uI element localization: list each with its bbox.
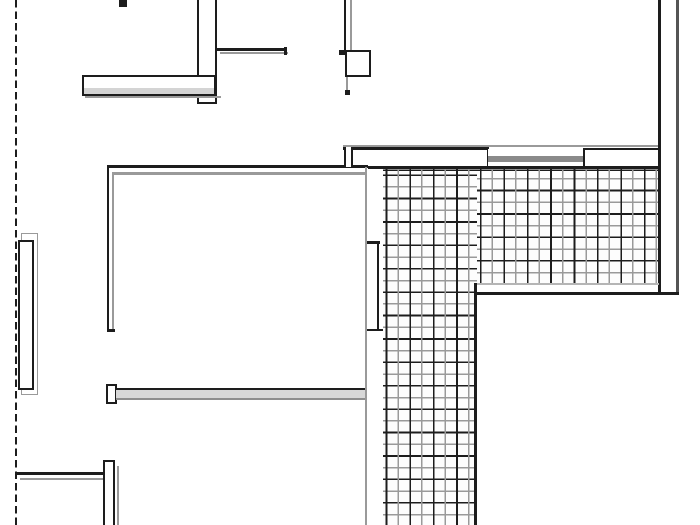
terrace-hatch-top-arm <box>477 169 658 283</box>
wall-topleft-bar-shadow <box>85 96 221 99</box>
corridor-wall-v <box>103 460 115 525</box>
terrace-hatch-vertical-arm <box>383 169 477 525</box>
east-wall-door-line <box>377 241 380 331</box>
floor-plan-canvas <box>0 0 700 525</box>
wall-topmid-gray <box>350 0 352 51</box>
terrace-inner-edge-vertical <box>474 283 477 525</box>
column-square <box>345 50 371 77</box>
room-wall-bottom-cap <box>106 384 117 404</box>
east-wall-inner-line <box>365 167 367 525</box>
header-line-cap <box>284 47 287 55</box>
wall-topleft-bar <box>82 75 216 96</box>
pilaster <box>18 240 34 390</box>
corridor-wall-h-dark <box>17 472 104 475</box>
terrace-band-stub <box>344 147 354 167</box>
room-wall-top-dark <box>108 165 368 168</box>
column-stem <box>346 77 348 90</box>
right-wall-inner <box>676 0 679 295</box>
corridor-wall-v-shadow <box>117 466 119 525</box>
terrace-band-top-darkline <box>343 147 488 150</box>
column-stem-tip <box>345 90 350 96</box>
terrace-bottom-band-darkline <box>477 292 679 295</box>
room-wall-top-gray <box>113 172 366 175</box>
corridor-wall-h-gray <box>20 478 107 481</box>
wall-topmid-dark <box>344 0 346 51</box>
boundary-dashed-line <box>15 0 18 525</box>
room-wall-left-dark <box>107 165 109 331</box>
north-mark <box>119 0 127 7</box>
header-line-dark <box>217 48 287 51</box>
right-wall-outer <box>658 0 661 294</box>
room-wall-left-cap <box>107 329 115 332</box>
room-wall-left-gray <box>112 172 114 331</box>
header-line-gray <box>220 52 288 55</box>
terrace-bottom-band-grayline <box>477 283 659 285</box>
room-wall-bottom-band <box>116 388 366 400</box>
window-b <box>583 148 658 166</box>
window-a-sash-bar <box>488 156 583 162</box>
